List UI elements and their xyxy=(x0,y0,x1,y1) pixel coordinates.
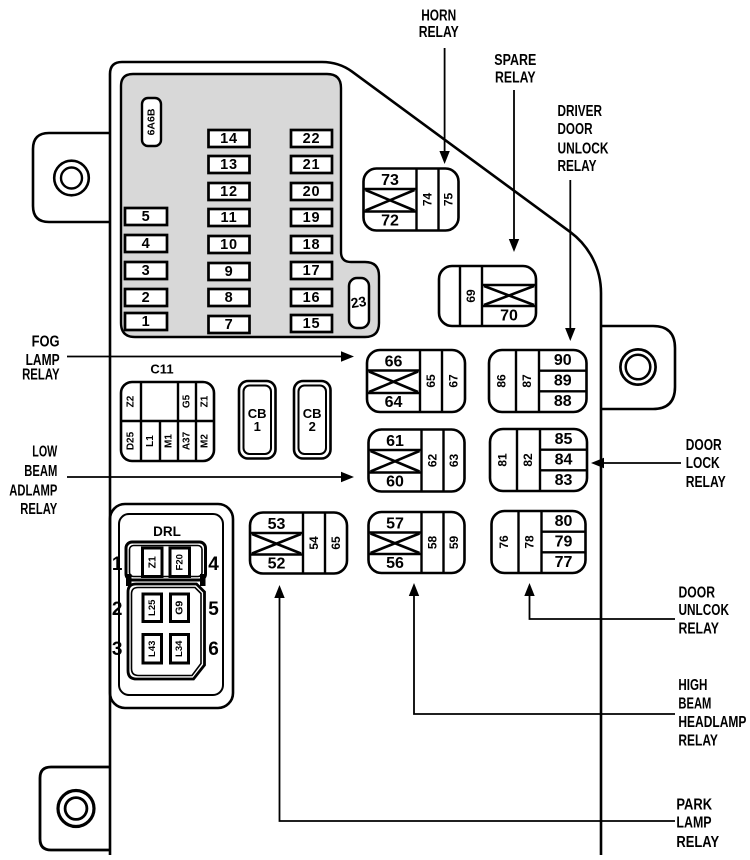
svg-text:HEADLAMP: HEADLAMP xyxy=(678,714,746,731)
svg-text:83: 83 xyxy=(555,472,573,489)
svg-text:63: 63 xyxy=(447,454,461,468)
svg-text:15: 15 xyxy=(303,316,321,332)
svg-text:67: 67 xyxy=(447,374,461,388)
svg-text:DRL: DRL xyxy=(153,524,181,539)
svg-text:84: 84 xyxy=(555,452,573,469)
svg-text:73: 73 xyxy=(381,172,399,189)
svg-text:L43: L43 xyxy=(147,641,158,657)
svg-text:64: 64 xyxy=(385,394,403,411)
svg-text:UNLCOK: UNLCOK xyxy=(679,602,730,619)
svg-text:Z2: Z2 xyxy=(126,395,137,407)
svg-text:88: 88 xyxy=(554,393,572,410)
svg-text:DOOR: DOOR xyxy=(558,121,593,138)
svg-text:4: 4 xyxy=(142,236,151,252)
svg-text:D25: D25 xyxy=(126,431,137,450)
svg-text:85: 85 xyxy=(555,431,573,448)
svg-text:90: 90 xyxy=(554,352,572,369)
svg-text:59: 59 xyxy=(447,536,461,550)
svg-text:F20: F20 xyxy=(174,554,185,570)
svg-text:21: 21 xyxy=(303,157,321,173)
svg-text:23: 23 xyxy=(350,293,368,311)
svg-text:DOOR: DOOR xyxy=(679,585,716,602)
svg-text:76: 76 xyxy=(497,535,511,549)
svg-text:LOCK: LOCK xyxy=(686,455,720,472)
svg-text:L1: L1 xyxy=(145,435,156,447)
svg-text:DRIVER: DRIVER xyxy=(558,103,603,120)
svg-text:L25: L25 xyxy=(147,599,158,616)
svg-text:62: 62 xyxy=(426,454,440,468)
svg-text:8: 8 xyxy=(225,290,234,306)
svg-text:LAMP: LAMP xyxy=(676,815,711,832)
svg-text:Z1: Z1 xyxy=(146,556,158,568)
svg-text:7: 7 xyxy=(225,317,234,333)
svg-text:6A6B: 6A6B xyxy=(146,108,158,135)
svg-text:A37: A37 xyxy=(182,431,193,450)
svg-text:1: 1 xyxy=(142,314,151,330)
svg-text:69: 69 xyxy=(464,289,478,303)
svg-text:UNLOCK: UNLOCK xyxy=(558,141,609,158)
svg-text:ADLAMP: ADLAMP xyxy=(9,483,57,500)
svg-text:RELAY: RELAY xyxy=(678,733,718,750)
svg-text:BEAM: BEAM xyxy=(24,463,57,480)
svg-text:L34: L34 xyxy=(174,640,185,657)
svg-text:HIGH: HIGH xyxy=(678,677,707,694)
svg-text:54: 54 xyxy=(307,536,321,550)
svg-text:65: 65 xyxy=(329,536,343,550)
svg-text:9: 9 xyxy=(225,264,234,280)
svg-text:FOG: FOG xyxy=(32,334,60,351)
svg-text:72: 72 xyxy=(381,213,399,230)
svg-text:19: 19 xyxy=(303,210,321,226)
svg-text:87: 87 xyxy=(520,374,534,388)
svg-text:RELAY: RELAY xyxy=(558,158,597,175)
svg-text:G9: G9 xyxy=(174,601,186,615)
svg-text:22: 22 xyxy=(303,131,321,147)
svg-text:RELAY: RELAY xyxy=(679,621,720,638)
svg-text:58: 58 xyxy=(426,536,440,550)
svg-text:13: 13 xyxy=(220,157,238,173)
svg-text:C11: C11 xyxy=(150,362,173,377)
svg-text:DOOR: DOOR xyxy=(686,437,722,454)
svg-text:77: 77 xyxy=(555,554,573,571)
svg-text:66: 66 xyxy=(385,354,403,371)
svg-text:3: 3 xyxy=(142,263,151,279)
svg-text:18: 18 xyxy=(303,237,321,253)
svg-text:65: 65 xyxy=(424,374,438,388)
svg-text:70: 70 xyxy=(500,308,518,325)
svg-text:RELAY: RELAY xyxy=(686,474,726,491)
svg-text:10: 10 xyxy=(220,237,238,253)
svg-text:1: 1 xyxy=(254,419,261,434)
svg-text:89: 89 xyxy=(554,373,572,390)
svg-text:M2: M2 xyxy=(200,434,211,448)
svg-text:12: 12 xyxy=(220,184,238,200)
svg-text:11: 11 xyxy=(221,210,238,226)
svg-text:79: 79 xyxy=(555,534,573,551)
svg-text:PARK: PARK xyxy=(676,797,712,814)
svg-text:2: 2 xyxy=(142,290,151,306)
svg-text:Z1: Z1 xyxy=(200,395,211,407)
svg-text:20: 20 xyxy=(303,184,321,200)
svg-text:BEAM: BEAM xyxy=(678,696,711,713)
svg-text:56: 56 xyxy=(386,555,404,572)
svg-text:SPARE: SPARE xyxy=(494,52,536,69)
svg-text:52: 52 xyxy=(268,556,286,573)
svg-text:57: 57 xyxy=(386,516,404,533)
svg-text:5: 5 xyxy=(142,209,151,225)
svg-text:4: 4 xyxy=(208,554,219,575)
svg-text:G5: G5 xyxy=(182,394,193,408)
svg-text:74: 74 xyxy=(421,193,435,207)
svg-text:86: 86 xyxy=(495,374,509,388)
svg-text:2: 2 xyxy=(112,599,123,620)
svg-text:1: 1 xyxy=(112,554,123,575)
svg-text:81: 81 xyxy=(496,453,510,467)
svg-text:53: 53 xyxy=(268,516,286,533)
svg-text:HORN: HORN xyxy=(421,8,456,25)
svg-text:RELAY: RELAY xyxy=(419,24,459,41)
svg-text:RELAY: RELAY xyxy=(676,834,719,851)
svg-text:RELAY: RELAY xyxy=(20,501,57,518)
svg-text:LOW: LOW xyxy=(32,444,58,461)
svg-text:RELAY: RELAY xyxy=(495,70,536,87)
svg-text:16: 16 xyxy=(303,290,321,306)
svg-text:5: 5 xyxy=(208,599,219,620)
svg-text:75: 75 xyxy=(442,193,456,207)
svg-text:RELAY: RELAY xyxy=(22,367,60,384)
svg-text:6: 6 xyxy=(208,639,219,660)
svg-text:M1: M1 xyxy=(164,434,175,448)
svg-text:2: 2 xyxy=(309,419,316,434)
svg-text:78: 78 xyxy=(523,535,537,549)
svg-text:17: 17 xyxy=(303,263,321,279)
svg-text:3: 3 xyxy=(112,639,123,660)
svg-text:80: 80 xyxy=(555,513,573,530)
svg-text:60: 60 xyxy=(386,474,404,491)
svg-text:82: 82 xyxy=(521,453,535,467)
svg-text:61: 61 xyxy=(386,433,404,450)
svg-text:14: 14 xyxy=(220,131,238,147)
